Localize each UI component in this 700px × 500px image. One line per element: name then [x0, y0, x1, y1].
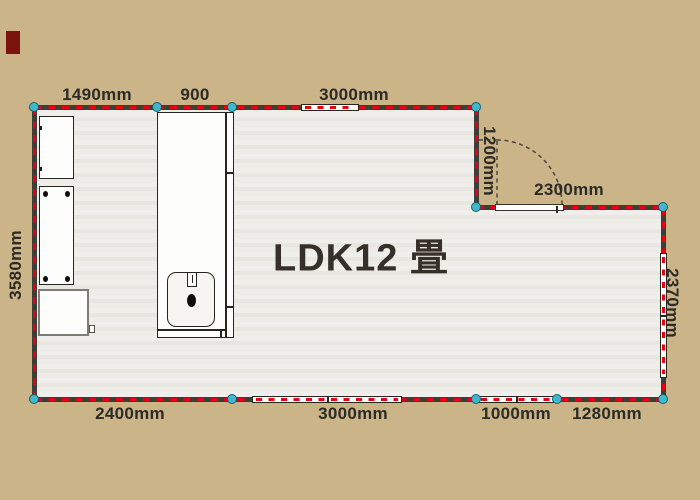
dim-label-left-3580: 3580mm — [6, 230, 26, 300]
counter-divider — [226, 172, 233, 174]
dim-label-top-1490: 1490mm — [62, 85, 132, 105]
window-top — [301, 104, 359, 111]
drain-icon — [187, 294, 196, 307]
cabinet-knob — [43, 276, 48, 282]
window-mullion — [516, 397, 518, 402]
dim-label-bottom-3000: 3000mm — [318, 404, 388, 424]
door-latch-mark — [556, 206, 558, 213]
fixture-range-unit — [38, 289, 89, 336]
dim-label-bottom-1000: 1000mm — [481, 404, 551, 424]
vertex-handle[interactable] — [471, 394, 481, 404]
dim-label-notch-2300: 2300mm — [534, 180, 604, 200]
cabinet-hinge-mark — [40, 126, 42, 130]
counter-divider — [226, 306, 233, 308]
vertex-handle[interactable] — [227, 394, 237, 404]
vertex-handle[interactable] — [471, 102, 481, 112]
window-mullion — [327, 397, 329, 402]
vertex-handle[interactable] — [29, 394, 39, 404]
fixture-wall-cabinet — [39, 116, 74, 179]
window-bottom-left — [252, 396, 402, 403]
cabinet-knob — [65, 191, 70, 197]
dim-label-bottom-1280: 1280mm — [572, 404, 642, 424]
range-handle — [89, 325, 95, 333]
vertex-handle[interactable] — [552, 394, 562, 404]
vertex-handle[interactable] — [152, 102, 162, 112]
counter-divider — [158, 329, 226, 331]
cabinet-hinge-mark — [40, 167, 42, 171]
dim-label-notch-1200: 1200mm — [479, 126, 499, 196]
vertex-handle[interactable] — [29, 102, 39, 112]
vertex-handle[interactable] — [227, 102, 237, 112]
fixture-tall-cabinet — [39, 186, 74, 285]
faucet-icon — [187, 272, 197, 287]
cabinet-knob — [43, 191, 48, 197]
counter-divider — [225, 113, 227, 337]
vertex-handle[interactable] — [658, 202, 668, 212]
dim-label-top-900: 900 — [180, 85, 209, 105]
cabinet-knob — [65, 276, 70, 282]
dim-label-bottom-2400: 2400mm — [95, 404, 165, 424]
dim-label-top-3000: 3000mm — [319, 85, 389, 105]
dim-label-right-2370: 2370mm — [662, 268, 682, 338]
window-bottom-right — [477, 396, 554, 403]
room-label: LDK12 畳 — [273, 227, 449, 282]
vertex-handle[interactable] — [471, 202, 481, 212]
vertex-handle[interactable] — [658, 394, 668, 404]
floor-plan-canvas: 1490mm 900 3000mm 1200mm 2300mm 3580mm 2… — [0, 0, 700, 500]
counter-divider — [220, 330, 222, 337]
wall-left — [32, 105, 37, 402]
door-opening — [495, 204, 564, 211]
wall-top — [32, 105, 479, 110]
red-marker — [6, 31, 20, 54]
